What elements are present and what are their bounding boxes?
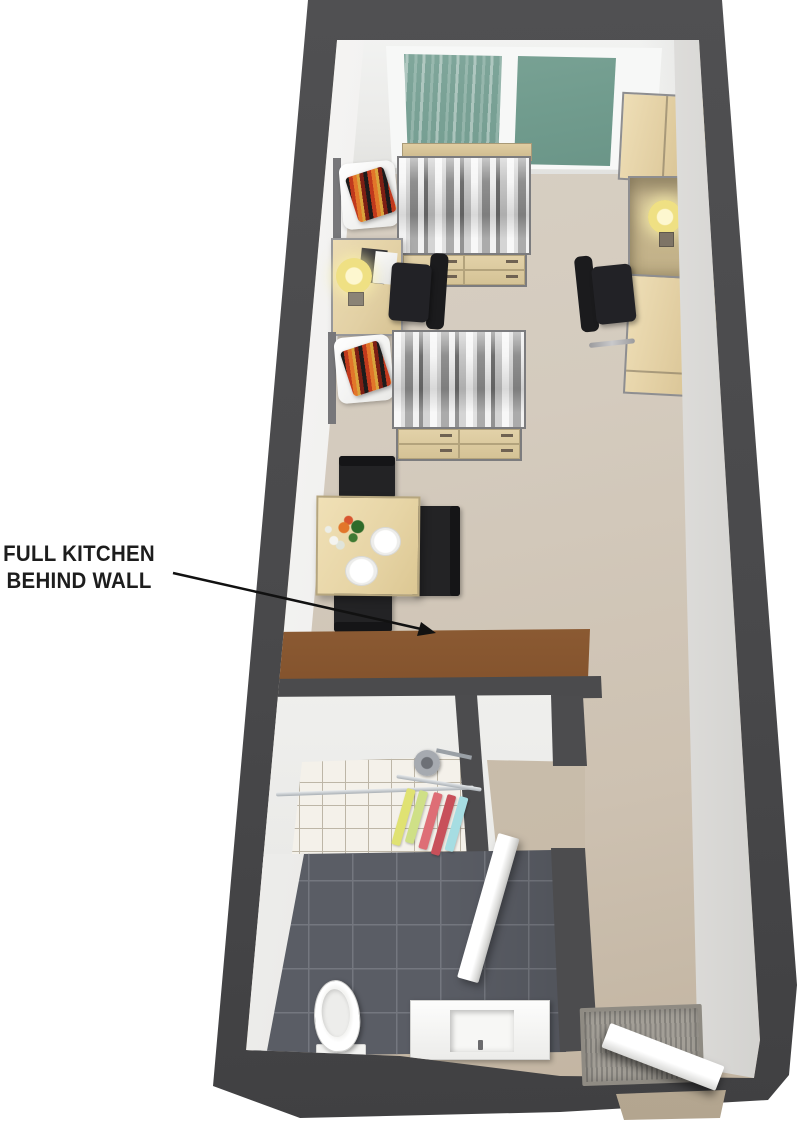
drawer [459,444,520,459]
drawer [464,270,525,285]
annotation-line-1: FULL KITCHEN [0,540,158,567]
annotation-line-2: BEHIND WALL [0,567,158,594]
bed-2-duvet [392,330,526,429]
plate [370,527,401,556]
office-chair-1 [385,246,451,342]
plate [345,556,378,586]
bed-2 [328,330,528,460]
dining-chair-top [339,456,395,498]
drawer [398,444,459,459]
table-lamp-1-base [348,292,364,306]
drawer [459,429,520,444]
bed-2-underbed-drawers [396,427,522,461]
bed-1-duvet [397,156,531,255]
table-lamp-2 [648,200,682,234]
table-lamp-2-base [659,232,674,247]
floorplan-scene: FULL KITCHEN BEHIND WALL [0,0,797,1121]
drawer [398,429,459,444]
flower-vase [320,512,366,558]
shower-head [414,750,440,776]
faucet [478,1040,483,1050]
office-chair-2 [571,247,640,345]
drawer [464,255,525,270]
chair-seat [591,263,637,325]
table-lamp-1 [336,258,372,294]
annotation-label: FULL KITCHEN BEHIND WALL [0,540,158,594]
chair-seat [388,262,432,323]
